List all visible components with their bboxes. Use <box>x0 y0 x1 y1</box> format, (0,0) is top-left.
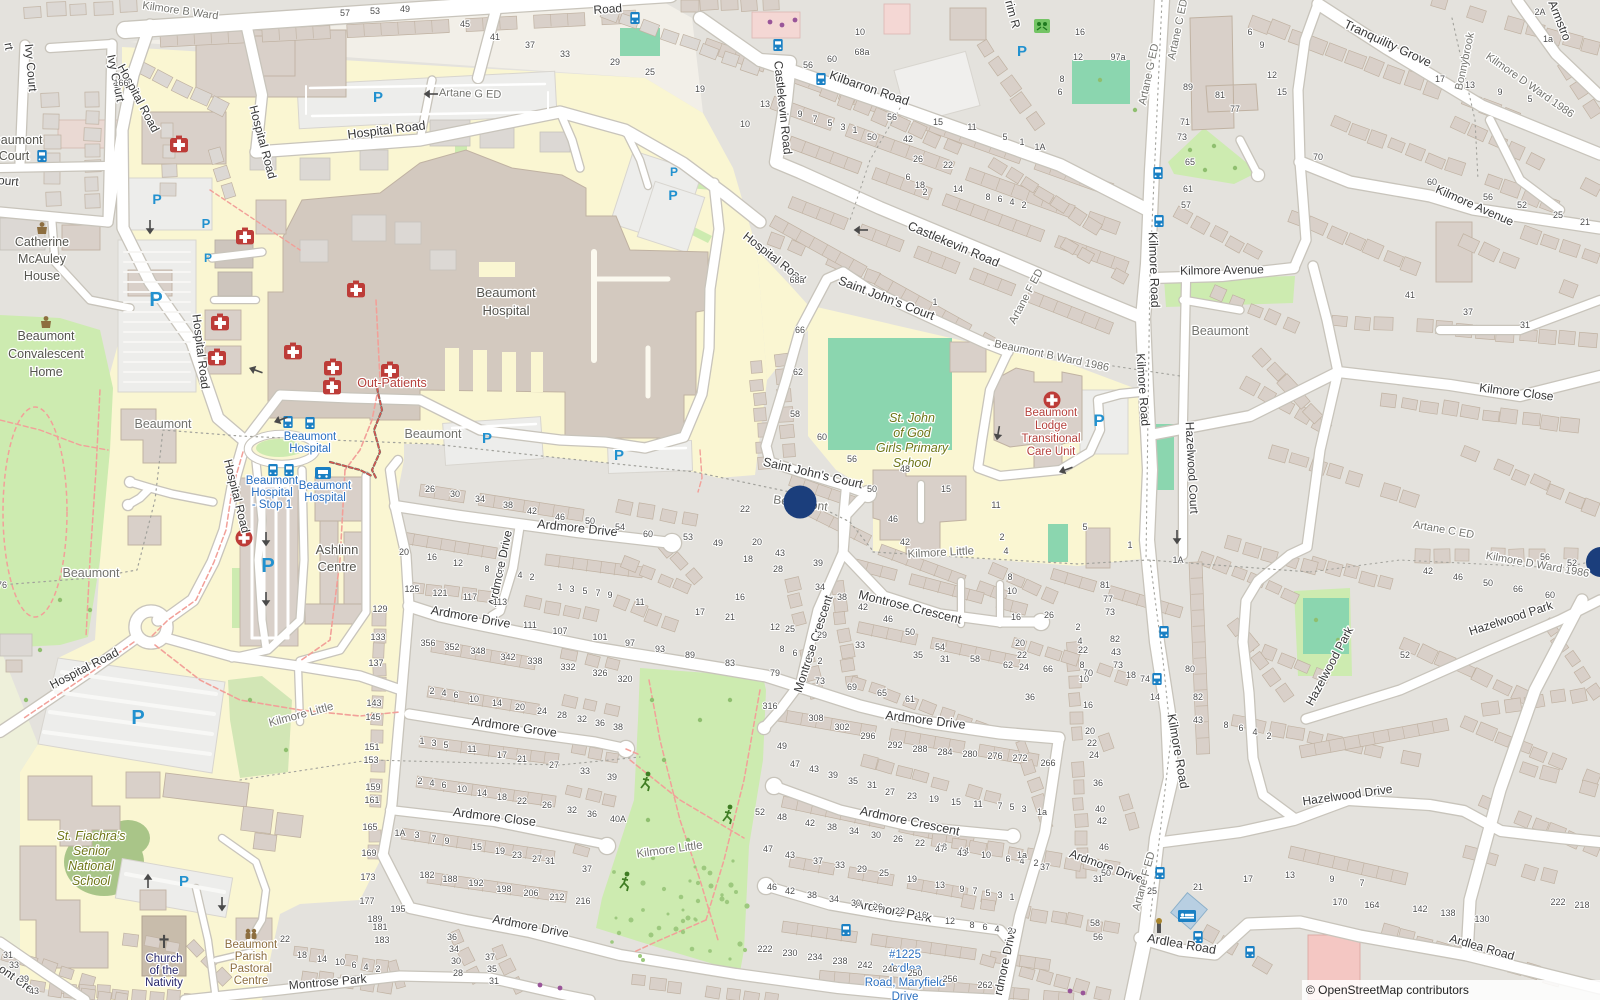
svg-text:33: 33 <box>560 49 570 59</box>
svg-text:36: 36 <box>587 809 597 819</box>
svg-text:2: 2 <box>1021 200 1026 210</box>
svg-text:34: 34 <box>815 582 825 592</box>
svg-text:52: 52 <box>1517 200 1527 210</box>
svg-text:Beaumont: Beaumont <box>284 431 337 443</box>
svg-text:348: 348 <box>470 646 485 656</box>
svg-text:8: 8 <box>1007 572 1012 582</box>
svg-text:288: 288 <box>912 744 927 754</box>
svg-text:19: 19 <box>495 846 505 856</box>
svg-text:60: 60 <box>1427 177 1437 187</box>
svg-text:Nativity: Nativity <box>145 977 183 989</box>
svg-text:Home: Home <box>29 365 62 379</box>
svg-text:4: 4 <box>441 688 446 698</box>
svg-text:272: 272 <box>1012 753 1027 763</box>
svg-text:5: 5 <box>827 118 832 128</box>
svg-text:234: 234 <box>807 952 822 962</box>
svg-text:9: 9 <box>797 109 802 119</box>
svg-text:60: 60 <box>827 54 837 64</box>
svg-text:183: 183 <box>374 935 389 945</box>
svg-text:266: 266 <box>1040 758 1055 768</box>
svg-text:14: 14 <box>477 788 487 798</box>
svg-text:1: 1 <box>1009 892 1014 902</box>
svg-text:47: 47 <box>790 759 800 769</box>
svg-text:7: 7 <box>431 834 436 844</box>
svg-text:20: 20 <box>515 702 525 712</box>
svg-text:1: 1 <box>419 736 424 746</box>
svg-text:142: 142 <box>1412 904 1427 914</box>
svg-text:20: 20 <box>1085 726 1095 736</box>
svg-text:26: 26 <box>425 484 435 494</box>
svg-text:192: 192 <box>468 878 483 888</box>
svg-text:58: 58 <box>970 654 980 664</box>
svg-text:39: 39 <box>813 558 823 568</box>
svg-text:42: 42 <box>900 537 910 547</box>
svg-text:117: 117 <box>463 592 477 602</box>
svg-text:6: 6 <box>441 780 446 790</box>
svg-text:250: 250 <box>907 968 922 978</box>
svg-text:101: 101 <box>592 632 607 642</box>
svg-text:17: 17 <box>1435 74 1445 84</box>
svg-text:198: 198 <box>496 884 511 894</box>
svg-text:280: 280 <box>962 749 977 759</box>
svg-text:41: 41 <box>490 32 500 42</box>
svg-text:30: 30 <box>450 489 460 499</box>
svg-text:P: P <box>261 555 274 577</box>
svg-text:69: 69 <box>847 682 857 692</box>
svg-text:10: 10 <box>981 850 991 860</box>
svg-text:58: 58 <box>790 409 800 419</box>
svg-text:32: 32 <box>567 805 577 815</box>
svg-text:28: 28 <box>557 710 567 720</box>
svg-text:15: 15 <box>941 484 951 494</box>
svg-text:1A: 1A <box>1172 555 1183 565</box>
svg-text:212: 212 <box>549 892 564 902</box>
svg-text:22: 22 <box>1087 738 1097 748</box>
svg-text:Beaumont: Beaumont <box>225 939 278 951</box>
svg-text:145: 145 <box>365 712 380 722</box>
svg-text:15: 15 <box>951 797 961 807</box>
svg-text:30: 30 <box>871 830 881 840</box>
svg-text:137: 137 <box>368 658 383 668</box>
svg-text:49: 49 <box>713 538 723 548</box>
svg-text:43: 43 <box>1111 647 1121 657</box>
svg-text:10: 10 <box>1079 674 1089 684</box>
svg-text:20: 20 <box>399 547 409 557</box>
svg-text:Transitional: Transitional <box>1021 433 1080 445</box>
svg-text:2: 2 <box>817 656 822 666</box>
svg-text:35: 35 <box>487 964 497 974</box>
svg-text:12: 12 <box>1073 52 1083 62</box>
svg-text:52: 52 <box>1567 558 1577 568</box>
svg-text:48: 48 <box>900 464 910 474</box>
svg-text:Kilmore Road: Kilmore Road <box>1146 232 1163 308</box>
svg-text:165: 165 <box>362 822 377 832</box>
svg-text:130: 130 <box>1474 914 1489 924</box>
svg-text:Catherine: Catherine <box>15 235 69 249</box>
svg-text:1: 1 <box>1127 540 1132 550</box>
svg-text:302: 302 <box>834 722 849 732</box>
svg-text:43: 43 <box>785 850 795 860</box>
svg-text:52: 52 <box>1400 650 1410 660</box>
svg-text:66: 66 <box>1043 664 1053 674</box>
svg-text:11: 11 <box>467 744 476 754</box>
svg-text:17: 17 <box>695 607 705 617</box>
svg-text:173: 173 <box>360 872 375 882</box>
svg-text:St. John: St. John <box>889 411 935 425</box>
svg-text:22: 22 <box>280 934 290 944</box>
svg-text:62: 62 <box>1003 660 1013 670</box>
svg-text:St. Fiachra's: St. Fiachra's <box>56 829 125 843</box>
svg-text:24: 24 <box>1019 662 1029 672</box>
svg-text:50: 50 <box>867 484 877 494</box>
svg-text:Lodge: Lodge <box>1035 420 1067 432</box>
svg-text:34: 34 <box>849 826 859 836</box>
svg-text:16: 16 <box>1011 612 1021 622</box>
svg-text:19: 19 <box>907 874 917 884</box>
svg-text:33: 33 <box>580 766 590 776</box>
svg-text:Beaumont: Beaumont <box>18 329 76 343</box>
svg-text:27: 27 <box>549 760 559 770</box>
svg-text:60: 60 <box>643 529 653 539</box>
svg-text:11: 11 <box>635 597 644 607</box>
svg-text:23: 23 <box>907 791 917 801</box>
svg-text:68a: 68a <box>789 275 804 285</box>
svg-text:93: 93 <box>655 644 665 654</box>
svg-text:House: House <box>24 269 60 283</box>
svg-text:74: 74 <box>1140 674 1150 684</box>
svg-text:Road: Road <box>593 1 623 17</box>
svg-text:27: 27 <box>532 854 542 864</box>
svg-text:42: 42 <box>903 134 913 144</box>
svg-text:14: 14 <box>953 184 963 194</box>
svg-text:284: 284 <box>937 747 952 757</box>
svg-text:26: 26 <box>893 834 903 844</box>
svg-text:1: 1 <box>557 582 562 592</box>
svg-text:27: 27 <box>885 787 895 797</box>
svg-text:206: 206 <box>523 888 538 898</box>
svg-text:262: 262 <box>977 980 992 990</box>
svg-text:50: 50 <box>905 627 915 637</box>
svg-text:8: 8 <box>969 920 974 930</box>
svg-text:26: 26 <box>542 800 552 810</box>
svg-text:159: 159 <box>365 782 380 792</box>
svg-text:10: 10 <box>855 27 865 37</box>
svg-text:Centre: Centre <box>317 559 356 574</box>
svg-text:22: 22 <box>1017 650 1027 660</box>
svg-text:22: 22 <box>895 906 905 916</box>
svg-text:56: 56 <box>1540 552 1550 562</box>
svg-text:Senior: Senior <box>73 844 110 858</box>
svg-text:P: P <box>482 430 492 447</box>
svg-text:6: 6 <box>497 566 502 576</box>
svg-text:28: 28 <box>453 968 463 978</box>
svg-text:Out-Patients: Out-Patients <box>357 376 426 390</box>
svg-text:42: 42 <box>785 886 795 896</box>
svg-text:188: 188 <box>442 874 457 884</box>
svg-text:133: 133 <box>370 632 385 642</box>
svg-text:4: 4 <box>1252 727 1257 737</box>
svg-text:151: 151 <box>364 742 379 752</box>
svg-text:21: 21 <box>1580 217 1590 227</box>
svg-text:37: 37 <box>1463 307 1473 317</box>
svg-text:34: 34 <box>829 894 839 904</box>
svg-text:9: 9 <box>1259 40 1264 50</box>
svg-text:8: 8 <box>985 192 990 202</box>
svg-text:222: 222 <box>757 944 772 954</box>
svg-text:22: 22 <box>943 160 953 170</box>
svg-text:296: 296 <box>860 731 875 741</box>
svg-text:25: 25 <box>1553 210 1563 220</box>
svg-text:7: 7 <box>972 886 977 896</box>
svg-text:73: 73 <box>815 676 825 686</box>
svg-text:338: 338 <box>527 656 542 666</box>
svg-text:37: 37 <box>525 40 535 50</box>
svg-text:47: 47 <box>763 844 773 854</box>
svg-text:38: 38 <box>827 822 837 832</box>
svg-text:37: 37 <box>582 864 592 874</box>
svg-text:10: 10 <box>335 957 345 967</box>
svg-text:129: 129 <box>372 604 387 614</box>
svg-text:22: 22 <box>517 796 527 806</box>
svg-text:2A: 2A <box>1534 7 1545 17</box>
svg-text:56: 56 <box>1093 932 1103 942</box>
svg-text:77: 77 <box>1103 594 1113 604</box>
svg-text:56: 56 <box>847 454 857 464</box>
svg-text:37: 37 <box>485 952 495 962</box>
svg-text:13: 13 <box>1465 80 1475 90</box>
svg-text:5: 5 <box>1082 522 1087 532</box>
svg-text:© OpenStreetMap contributors: © OpenStreetMap contributors <box>1306 983 1469 997</box>
svg-text:4: 4 <box>363 962 368 972</box>
svg-text:39: 39 <box>19 974 29 984</box>
svg-text:Kilmore Avenue: Kilmore Avenue <box>1180 262 1264 277</box>
svg-text:61: 61 <box>1183 184 1193 194</box>
svg-text:16: 16 <box>735 592 745 602</box>
svg-text:of the: of the <box>150 965 179 977</box>
svg-text:4: 4 <box>1009 197 1014 207</box>
svg-text:29: 29 <box>817 630 827 640</box>
svg-text:2: 2 <box>429 686 434 696</box>
svg-text:316: 316 <box>762 701 777 711</box>
svg-text:125: 125 <box>404 584 419 594</box>
svg-text:2: 2 <box>417 776 422 786</box>
svg-text:24: 24 <box>1089 750 1099 760</box>
svg-text:35: 35 <box>848 776 858 786</box>
svg-text:49: 49 <box>777 741 787 751</box>
svg-text:✝: ✝ <box>156 932 171 952</box>
svg-text:89: 89 <box>1183 82 1193 92</box>
svg-text:81: 81 <box>1215 90 1225 100</box>
svg-text:9: 9 <box>959 884 964 894</box>
svg-text:29: 29 <box>610 57 620 67</box>
svg-text:66: 66 <box>795 325 805 335</box>
svg-text:Hospital: Hospital <box>289 443 331 455</box>
svg-text:#1225: #1225 <box>889 949 921 961</box>
svg-text:195: 195 <box>390 904 405 914</box>
svg-text:P: P <box>1093 411 1104 430</box>
svg-text:Beaumont: Beaumont <box>1192 324 1250 338</box>
svg-text:54: 54 <box>615 522 625 532</box>
svg-text:7: 7 <box>997 801 1002 811</box>
svg-text:3: 3 <box>414 830 419 840</box>
svg-text:School: School <box>893 456 932 470</box>
svg-text:43: 43 <box>809 764 819 774</box>
svg-text:39: 39 <box>607 772 617 782</box>
svg-text:57: 57 <box>1181 200 1191 210</box>
svg-text:1a: 1a <box>1037 807 1047 817</box>
svg-text:50: 50 <box>1483 578 1493 588</box>
svg-text:2: 2 <box>375 964 380 974</box>
svg-text:Hospital: Hospital <box>251 487 293 499</box>
svg-text:8: 8 <box>1079 660 1084 670</box>
svg-text:14: 14 <box>317 954 327 964</box>
svg-text:Pastoral: Pastoral <box>230 963 272 975</box>
svg-text:76: 76 <box>0 580 7 590</box>
svg-text:P: P <box>131 707 144 729</box>
svg-text:P: P <box>670 165 678 179</box>
svg-text:21: 21 <box>725 612 735 622</box>
svg-text:61: 61 <box>905 694 915 704</box>
svg-text:14: 14 <box>492 698 502 708</box>
svg-text:31: 31 <box>867 780 877 790</box>
svg-text:45: 45 <box>460 19 470 29</box>
svg-text:18: 18 <box>1126 670 1136 680</box>
svg-text:34: 34 <box>475 494 485 504</box>
svg-text:4: 4 <box>994 924 999 934</box>
svg-text:5: 5 <box>1002 132 1007 142</box>
svg-text:50: 50 <box>867 132 877 142</box>
svg-text:276: 276 <box>987 751 1002 761</box>
svg-text:11: 11 <box>991 500 1000 510</box>
svg-text:20: 20 <box>752 537 762 547</box>
svg-text:29: 29 <box>857 864 867 874</box>
svg-text:1a: 1a <box>1017 850 1027 860</box>
svg-text:53: 53 <box>683 532 693 542</box>
svg-text:31: 31 <box>545 856 555 866</box>
svg-text:5: 5 <box>1009 802 1014 812</box>
svg-text:352: 352 <box>444 642 459 652</box>
svg-text:216: 216 <box>575 896 590 906</box>
svg-text:10: 10 <box>469 694 479 704</box>
svg-text:42: 42 <box>858 602 868 612</box>
svg-text:182: 182 <box>419 870 434 880</box>
svg-text:6: 6 <box>351 960 356 970</box>
svg-text:65: 65 <box>877 688 887 698</box>
svg-text:12: 12 <box>770 622 780 632</box>
svg-text:37: 37 <box>1040 862 1050 872</box>
svg-text:42: 42 <box>805 818 815 828</box>
svg-text:3: 3 <box>569 584 574 594</box>
svg-text:P: P <box>668 187 677 203</box>
svg-text:Ashlinn: Ashlinn <box>316 542 359 557</box>
svg-text:15: 15 <box>472 842 482 852</box>
svg-text:30: 30 <box>851 898 861 908</box>
svg-text:153: 153 <box>363 755 378 765</box>
svg-text:National: National <box>68 859 115 873</box>
svg-text:Beaumont: Beaumont <box>135 417 193 431</box>
svg-text:3: 3 <box>1021 804 1026 814</box>
svg-text:18: 18 <box>297 950 307 960</box>
svg-text:2: 2 <box>999 532 1004 542</box>
svg-text:43: 43 <box>775 548 785 558</box>
svg-text:73: 73 <box>1105 607 1115 617</box>
svg-text:31: 31 <box>489 976 499 986</box>
svg-text:33: 33 <box>835 860 845 870</box>
svg-text:17: 17 <box>1243 874 1253 884</box>
svg-text:1: 1 <box>852 125 857 135</box>
svg-text:57: 57 <box>340 8 350 18</box>
svg-text:2: 2 <box>529 572 534 582</box>
svg-text:9: 9 <box>607 590 612 600</box>
svg-text:P: P <box>614 447 624 464</box>
svg-text:9: 9 <box>444 836 449 846</box>
svg-text:Parish: Parish <box>235 951 268 963</box>
svg-text:Beaumont: Beaumont <box>299 480 352 492</box>
svg-text:32: 32 <box>577 714 587 724</box>
svg-text:1: 1 <box>1019 137 1024 147</box>
svg-text:71: 71 <box>1180 117 1190 127</box>
svg-text:40A: 40A <box>610 814 626 824</box>
svg-text:46: 46 <box>1453 572 1463 582</box>
svg-text:332: 332 <box>560 662 575 672</box>
svg-text:25: 25 <box>645 67 655 77</box>
svg-text:35: 35 <box>913 650 923 660</box>
svg-text:4: 4 <box>1003 546 1008 556</box>
svg-text:26: 26 <box>1044 610 1054 620</box>
svg-text:68a: 68a <box>854 47 869 57</box>
svg-text:Beaumont: Beaumont <box>63 566 121 580</box>
svg-text:15: 15 <box>1277 87 1287 97</box>
svg-text:31: 31 <box>940 654 950 664</box>
svg-text:23: 23 <box>512 850 522 860</box>
svg-text:42: 42 <box>1423 566 1433 576</box>
svg-text:Hospital: Hospital <box>304 492 346 504</box>
svg-text:342: 342 <box>500 652 515 662</box>
svg-text:17: 17 <box>497 750 507 760</box>
svg-text:21: 21 <box>1193 882 1203 892</box>
svg-text:6: 6 <box>1238 723 1243 733</box>
svg-text:10: 10 <box>457 784 467 794</box>
svg-text:164: 164 <box>1364 900 1379 910</box>
svg-text:38: 38 <box>807 890 817 900</box>
svg-text:P: P <box>204 251 212 265</box>
svg-text:189: 189 <box>367 914 382 924</box>
svg-text:Road, Maryfield: Road, Maryfield <box>865 977 946 989</box>
svg-text:54: 54 <box>935 642 945 652</box>
svg-text:31: 31 <box>3 950 13 960</box>
svg-text:242: 242 <box>857 960 872 970</box>
svg-text:Beaumont: Beaumont <box>0 133 43 147</box>
svg-text:39: 39 <box>828 770 838 780</box>
svg-text:of God: of God <box>893 426 932 440</box>
svg-text:22: 22 <box>740 504 750 514</box>
svg-text:256: 256 <box>942 974 957 984</box>
svg-text:15: 15 <box>933 117 943 127</box>
svg-text:13: 13 <box>1285 870 1295 880</box>
svg-text:36: 36 <box>595 718 605 728</box>
svg-text:46: 46 <box>555 512 565 522</box>
svg-text:5: 5 <box>582 586 587 596</box>
svg-text:97a: 97a <box>1110 52 1125 62</box>
svg-text:70: 70 <box>1313 152 1323 162</box>
svg-text:22: 22 <box>915 838 925 848</box>
svg-text:218: 218 <box>1574 900 1589 910</box>
svg-text:46: 46 <box>888 514 898 524</box>
svg-text:19: 19 <box>929 794 939 804</box>
svg-text:89: 89 <box>685 650 695 660</box>
svg-text:P: P <box>149 289 162 311</box>
svg-text:73: 73 <box>1113 660 1123 670</box>
